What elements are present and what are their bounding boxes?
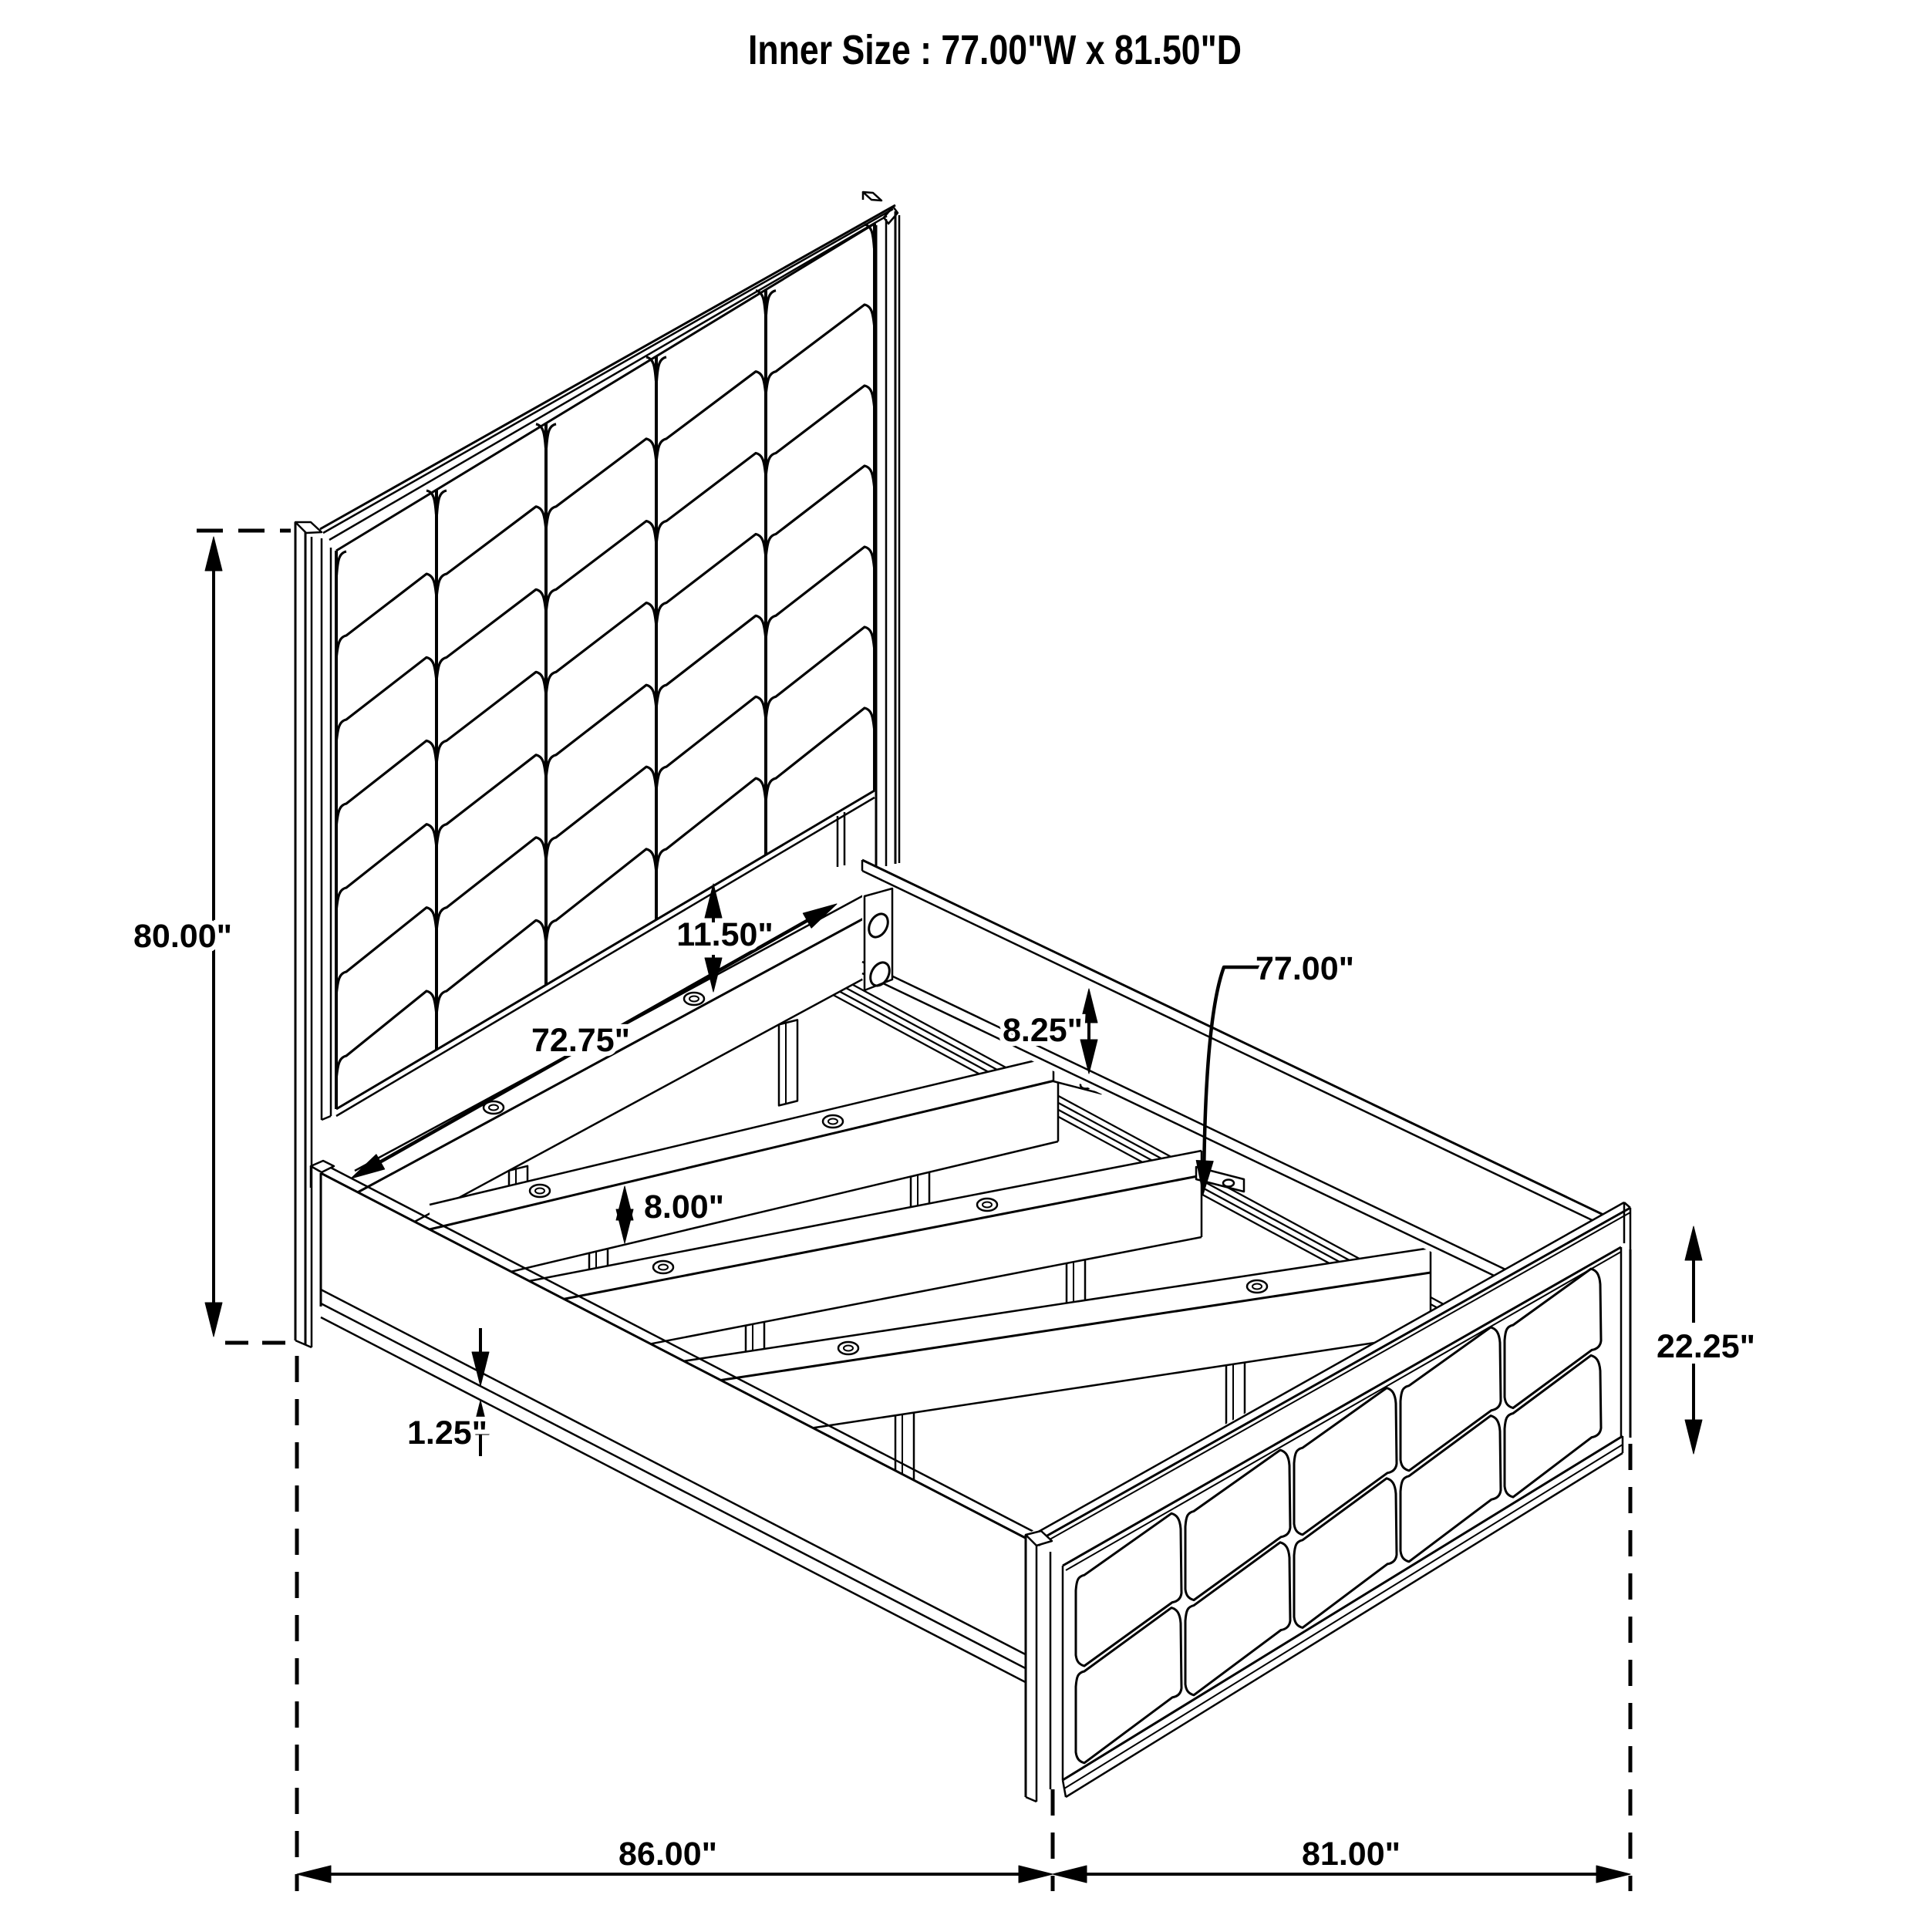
svg-text:86.00": 86.00" — [619, 1836, 717, 1873]
svg-text:8.25": 8.25" — [1003, 1012, 1083, 1049]
svg-text:11.50": 11.50" — [676, 916, 774, 953]
svg-text:8.00": 8.00" — [644, 1189, 724, 1226]
svg-text:Inner Size : 77.00"W x 81.50"D: Inner Size : 77.00"W x 81.50"D — [748, 27, 1242, 73]
svg-text:72.75": 72.75" — [531, 1022, 630, 1059]
svg-text:22.25": 22.25" — [1657, 1328, 1755, 1365]
svg-text:81.00": 81.00" — [1302, 1836, 1400, 1873]
svg-text:1.25": 1.25" — [407, 1414, 487, 1452]
svg-text:77.00": 77.00" — [1256, 950, 1354, 987]
svg-text:80.00": 80.00" — [133, 918, 232, 955]
